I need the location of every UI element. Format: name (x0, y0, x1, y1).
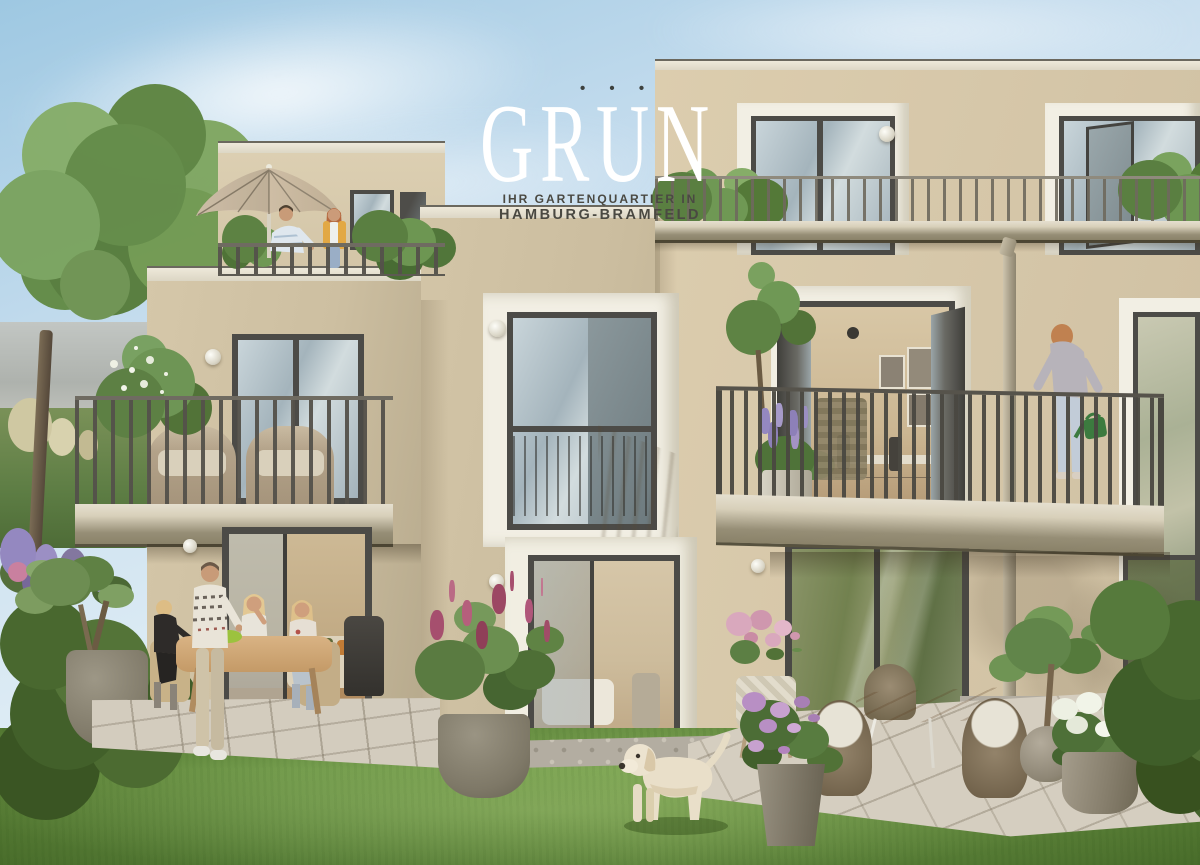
pink-flowers (726, 612, 752, 636)
slab-shadow (770, 552, 1170, 578)
central-lower-window (528, 555, 680, 747)
gallery-picture (879, 355, 905, 389)
slab-shadow (655, 240, 1200, 252)
lilac-foliage (415, 640, 485, 700)
project-wordmark: GRUN (480, 88, 716, 200)
wall-lamp (205, 349, 221, 365)
wall-lamp (489, 574, 504, 589)
interior-chair (632, 673, 660, 729)
roof-terrace-railing (218, 243, 445, 276)
hydrangea-pot (1062, 752, 1138, 814)
right-balcony-railing (716, 386, 1164, 514)
olive-tree-canopy (30, 558, 90, 606)
penthouse-railing (655, 176, 1200, 225)
tagline-line2: HAMBURG-BRAMFELD (498, 207, 702, 223)
tree-canopy (60, 250, 130, 320)
pink-plant-greens (730, 640, 760, 664)
open-sash (534, 561, 594, 741)
lilac-blooms (430, 610, 444, 640)
puppy-dog (610, 726, 758, 842)
wall-lamp (751, 559, 765, 573)
wall-lamp (489, 320, 506, 337)
tagline-line1: IHR GARTENQUARTIER IN (498, 192, 702, 206)
white-hydrangea-blooms (1052, 698, 1078, 720)
purple-hydrangea-blooms (742, 692, 766, 712)
balcony-tree (726, 300, 781, 355)
architectural-rendering: • • • GRUN IHR GARTENQUARTIER IN HAMBURG… (0, 0, 1200, 865)
right-shrub (1090, 580, 1170, 660)
wicker-chair (962, 698, 1028, 798)
pendant-lamp (847, 327, 859, 339)
left-balcony-railing (75, 396, 393, 512)
grill (344, 616, 384, 696)
white-flowers (110, 360, 118, 368)
wall-lamp (183, 539, 197, 553)
window-transom (513, 426, 651, 432)
pink-flower-bed (8, 562, 28, 582)
lilac-pot (438, 714, 530, 798)
standing-man (180, 560, 242, 766)
wall-lamp (879, 126, 895, 142)
potted-tree-canopy (1005, 618, 1071, 674)
